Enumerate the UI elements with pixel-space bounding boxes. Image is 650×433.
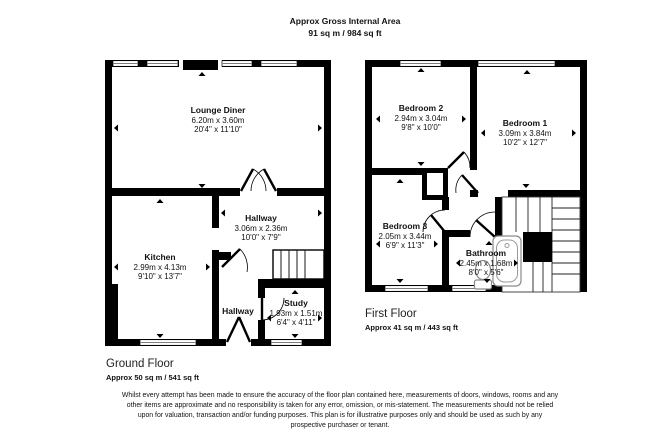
floorplan-page: Approx Gross Internal Area 91 sq m / 984… — [0, 0, 650, 433]
room-label-kitchen: Kitchen 2.99m x 4.13m 9'10" x 13'7" — [134, 252, 187, 282]
first-floor-title: First Floor — [365, 308, 417, 322]
room-label-hallway-upper: Hallway 3.06m x 2.36m 10'0" x 7'9" — [235, 213, 288, 243]
first-floor-area: Approx 41 sq m / 443 sq ft — [365, 323, 458, 332]
room-label-study: Study 1.93m x 1.51m 6'4" x 4'11" — [270, 298, 323, 328]
room-label-lounge-diner: Lounge Diner 6.20m x 3.60m 20'4" x 11'10… — [191, 105, 246, 135]
gross-internal-area-header: Approx Gross Internal Area 91 sq m / 984… — [290, 15, 401, 40]
ground-floor-stairs — [273, 250, 324, 279]
disclaimer-text: Whilst every attempt has been made to en… — [120, 391, 560, 431]
room-label-bedroom-2: Bedroom 2 2.94m x 3.04m 9'8" x 10'0" — [395, 103, 448, 133]
room-label-bathroom: Bathroom 2.45m x 1.68m 8'0" x 5'6" — [460, 248, 513, 278]
ground-floor-area: Approx 50 sq m / 541 sq ft — [106, 373, 199, 382]
header-line1: Approx Gross Internal Area — [290, 15, 401, 27]
room-label-bedroom-1: Bedroom 1 3.09m x 3.84m 10'2" x 12'7" — [499, 118, 552, 148]
ground-floor-title: Ground Floor — [106, 358, 174, 372]
floorplan-drawing — [0, 0, 650, 433]
landing-closet — [425, 171, 446, 198]
room-label-bedroom-3: Bedroom 3 2.05m x 3.44m 6'9" x 11'3" — [379, 221, 432, 251]
header-line2: 91 sq m / 984 sq ft — [290, 27, 401, 39]
room-label-hallway-lower: Hallway — [222, 306, 254, 317]
